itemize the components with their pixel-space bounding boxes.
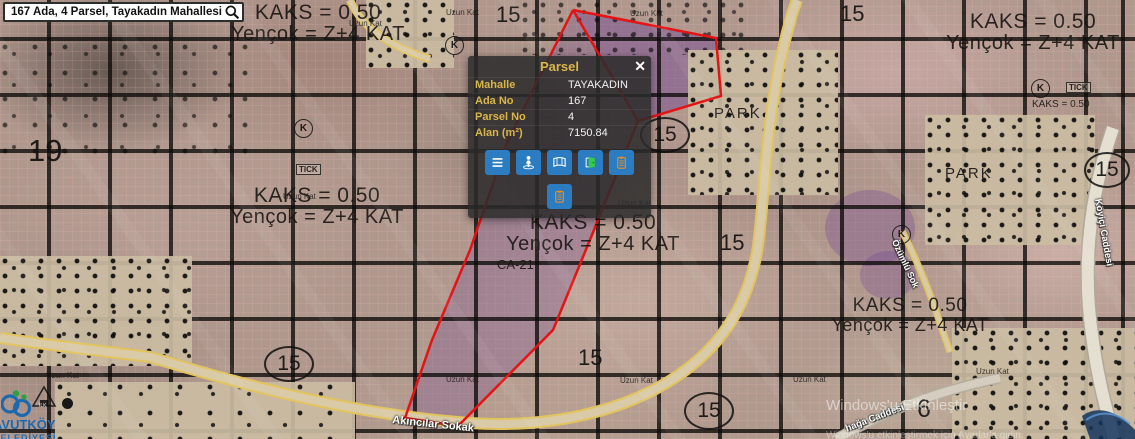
uzun-kat-label: Uzun Kat — [446, 8, 479, 17]
block-number: 15 — [578, 345, 602, 371]
popup-toolbar-row1 — [468, 150, 651, 175]
park-stipple-area — [0, 256, 192, 366]
circled-block-number: 15 — [1084, 152, 1130, 188]
school-symbol-label: İLK — [39, 403, 47, 409]
uzun-kat-label: Uzun Kat — [349, 19, 382, 28]
block-number: 15 — [496, 2, 520, 28]
block-number: 6 — [917, 395, 931, 424]
magnifier-icon[interactable] — [224, 4, 240, 20]
table-row: Alan (m²) 7150.84 — [468, 126, 651, 142]
clipboard-icon — [552, 189, 567, 204]
zone-code-label: CA-21 — [497, 257, 534, 272]
report-button-2[interactable] — [547, 184, 572, 209]
zoning-label-block: KAKS = 0.50 Yençok = Z+4 KAT — [210, 185, 424, 228]
search-input[interactable] — [5, 6, 224, 18]
block-number: 19 — [28, 133, 62, 169]
uzun-kat-label: Uzun Kat — [620, 376, 653, 385]
uzun-kat-label: Uzun Kat — [46, 371, 79, 380]
field-label: Alan (m²) — [468, 126, 561, 142]
park-label: PARK — [945, 165, 993, 182]
uzun-kat-label: Uzun Kat — [446, 375, 479, 384]
field-label: Parsel No — [468, 110, 561, 126]
map-dot-symbol — [62, 398, 73, 409]
circled-k-marker: K — [445, 36, 464, 55]
field-label: Ada No — [468, 94, 561, 110]
parcel-attributes-table: Mahalle TAYAKADIN Ada No 167 Parsel No 4… — [468, 77, 651, 141]
field-value: TAYAKADIN — [561, 78, 651, 94]
clipboard-icon — [614, 155, 629, 170]
zoning-label-block: KAKS = 0.50 Yençok = Z+4 KAT — [926, 11, 1135, 54]
uzun-kat-label: Uzun Kat — [793, 375, 826, 384]
uzun-kat-label: Uzun Kat — [283, 192, 316, 201]
circled-k-marker: K — [294, 119, 313, 138]
parcel-search-box — [3, 2, 244, 22]
gis-map-viewer: KAKS = 0.50 Yençok = Z+4 KAT KAKS = 0.50… — [0, 0, 1135, 439]
municipality-logo-subtext: BELEDİYESİ — [0, 433, 57, 439]
field-value: 167 — [561, 94, 651, 110]
popup-titlebar: Parsel ✕ — [468, 56, 651, 77]
field-label: Mahalle — [468, 78, 561, 94]
uzun-kat-label: Uzun Kat — [976, 367, 1009, 376]
menu-icon — [490, 155, 505, 170]
municipality-logo-text: AVUTKÖY — [0, 417, 56, 432]
door-button[interactable] — [578, 150, 603, 175]
table-row: Mahalle TAYAKADIN — [468, 78, 651, 94]
park-stipple-area — [55, 382, 355, 439]
street-view-button[interactable] — [516, 150, 541, 175]
menu-button[interactable] — [485, 150, 510, 175]
zoning-kaks-small: KAKS = 0.50 — [1032, 99, 1090, 110]
zone-code-tick: TICK — [1066, 82, 1091, 93]
popup-toolbar-row2 — [468, 184, 651, 209]
park-stipple-area — [688, 50, 838, 195]
door-icon — [583, 155, 598, 170]
uzun-kat-label: Uzun Kat — [630, 9, 663, 18]
zoning-label-block: KAKS = 0.50 Yençok = Z+4 KAT — [486, 212, 700, 255]
close-icon[interactable]: ✕ — [634, 57, 646, 75]
parcel-info-popup: Parsel ✕ Mahalle TAYAKADIN Ada No 167 Pa… — [468, 56, 651, 218]
park-stipple-area — [952, 328, 1135, 439]
popup-title: Parsel — [468, 56, 651, 77]
field-value: 7150.84 — [561, 126, 651, 142]
park-label: PARK — [714, 105, 762, 122]
street-view-icon — [521, 155, 536, 170]
block-number: 15 — [840, 1, 864, 27]
circled-k-marker: K — [1031, 79, 1050, 98]
table-row: Ada No 167 — [468, 94, 651, 110]
panorama-icon — [552, 155, 567, 170]
zone-code-tick: TICK — [296, 164, 321, 175]
report-button[interactable] — [609, 150, 634, 175]
field-value: 4 — [561, 110, 651, 126]
panorama-button[interactable] — [547, 150, 572, 175]
table-row: Parsel No 4 — [468, 110, 651, 126]
circled-block-number: 15 — [264, 346, 314, 382]
block-number: 15 — [720, 230, 744, 256]
circled-block-number: 15 — [684, 392, 734, 430]
zoning-label-block: KAKS = 0.50 Yençok = Z+4 KAT — [803, 296, 1017, 335]
